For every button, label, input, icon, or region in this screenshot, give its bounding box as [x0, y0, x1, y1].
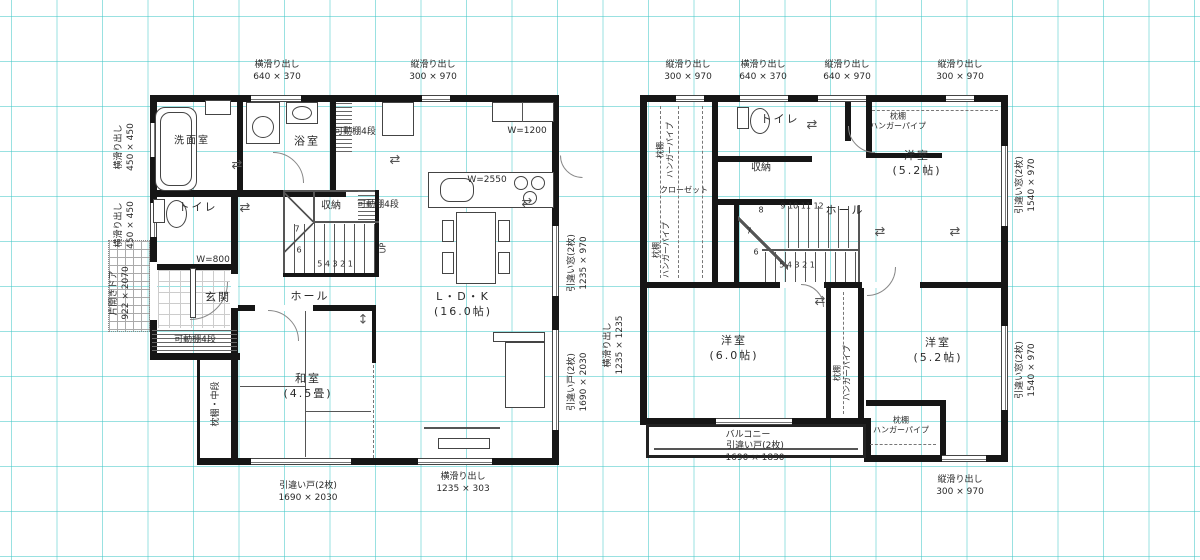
airflow-arrow-icon: ⇄ [875, 225, 886, 240]
wall-segment [712, 101, 718, 286]
window-label: 横滑り出し 640 × 370 [739, 59, 787, 83]
window-label: 縦滑り出し 640 × 970 [823, 59, 871, 83]
stairs-numbers: 5 4 3 2 1 [779, 261, 815, 272]
stairs-landing [762, 249, 858, 251]
window-slider [1001, 146, 1008, 226]
wall-segment [826, 288, 831, 418]
wall-segment [864, 455, 1008, 462]
closet-label: クローゼット [660, 186, 708, 197]
closet-label: 枕棚 ハンガーパイプ [873, 416, 929, 437]
window-slider [740, 95, 788, 102]
window-label: 縦滑り出し 300 × 970 [664, 59, 712, 83]
floor-plan-2f: 縦滑り出し 300 × 970 横滑り出し 640 × 370 縦滑り出し 64… [0, 0, 1200, 560]
window-slider [676, 95, 704, 102]
toilet-tank [737, 107, 749, 129]
window-slider [1001, 326, 1008, 410]
airflow-arrow-icon: ⇄ [807, 118, 818, 133]
window-label: 引違い窓(2枚) 1540 × 970 [1014, 156, 1038, 214]
closet-label: 枕棚 ハンガーパイプ [656, 122, 677, 178]
room-label-yoshitsu: 洋室 (6.0帖) [709, 334, 758, 364]
room-label-toilet: トイレ [761, 113, 800, 128]
window-slider [942, 455, 986, 462]
window-slider [946, 95, 974, 102]
wall-segment [640, 282, 1008, 288]
wall-segment [940, 400, 946, 455]
wall-segment [640, 95, 647, 425]
room-label-shuno: 収納 [751, 161, 771, 175]
stairs-number: 8 [758, 206, 763, 217]
window-label: 縦滑り出し 300 × 970 [936, 474, 984, 498]
closet-dash-line [870, 444, 936, 445]
closet-label: 枕棚 ハンガーパイプ [652, 222, 673, 278]
balcony-door [716, 418, 792, 425]
wall-segment [866, 400, 946, 406]
stairs-numbers: 9 10 11 12 [780, 202, 823, 213]
window-slider [818, 95, 866, 102]
room-label-yoshitsu: 洋室 (5.2帖) [892, 149, 941, 179]
floorplan-canvas: 横滑り出し 640 × 370 縦滑り出し 300 × 970 横滑り出し 45… [0, 0, 1200, 560]
closet-label: 枕棚 ハンガーパイプ [870, 112, 926, 133]
window-label: 引違い窓(2枚) 1540 × 970 [1014, 341, 1038, 399]
closet-label: 枕棚 ハンガーパイプ [833, 345, 854, 401]
airflow-arrow-icon: ⇄ [815, 294, 826, 309]
room-label-hall: ホール [826, 204, 865, 219]
door-label: 引違い戸(2枚) 1690 × 1830 [725, 440, 784, 464]
room-label-yoshitsu: 洋室 (5.2帖) [913, 336, 962, 366]
stairs-number: 6 [753, 248, 758, 259]
airflow-arrow-icon: ⇄ [950, 225, 961, 240]
stairs-number: 7 [746, 227, 751, 238]
window-label: 縦滑り出し 300 × 970 [936, 59, 984, 83]
